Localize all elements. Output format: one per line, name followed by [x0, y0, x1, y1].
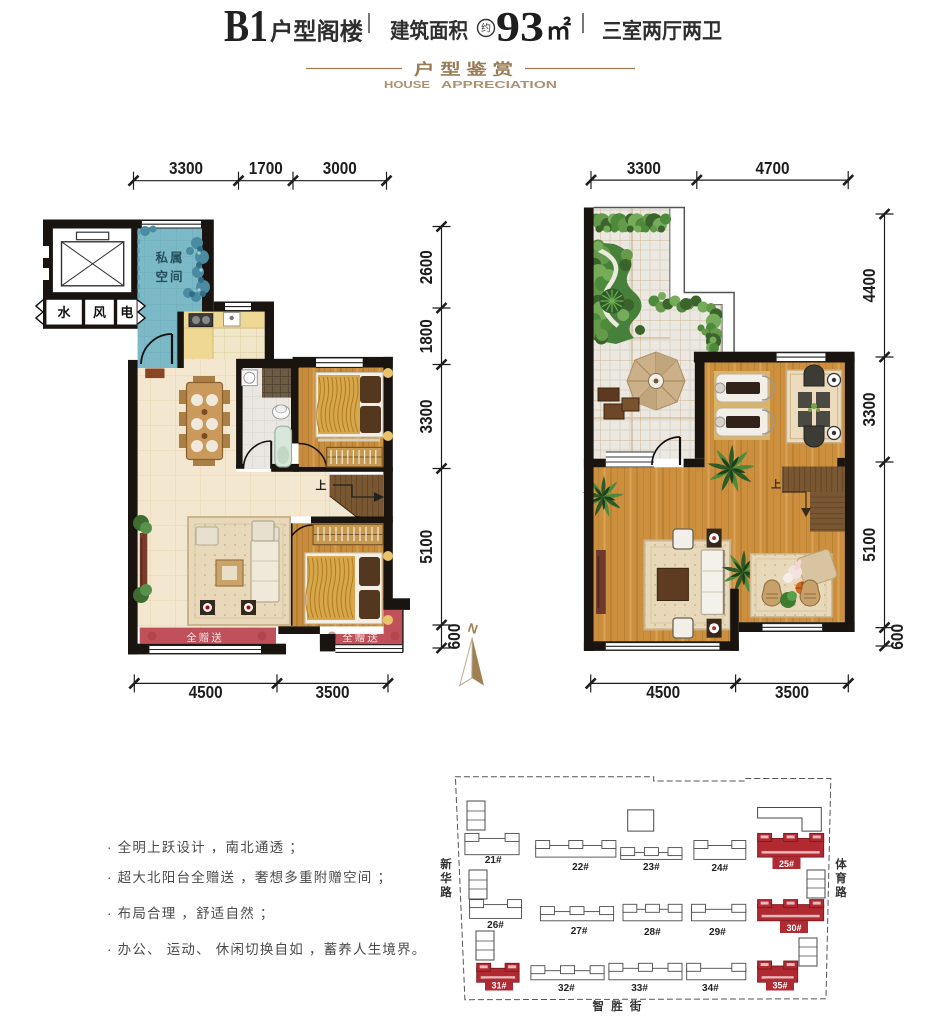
svg-text:· 超大北阳台全赠送 ，奢想多重附赠空间 ；: · 超大北阳台全赠送 ，奢想多重附赠空间 ；: [107, 869, 392, 886]
svg-text:1700: 1700: [249, 158, 283, 178]
svg-text:华: 华: [440, 871, 452, 885]
svg-text:4500: 4500: [646, 682, 680, 702]
svg-text:24#: 24#: [711, 863, 728, 874]
svg-text:26#: 26#: [487, 920, 504, 931]
svg-text:21#: 21#: [485, 855, 502, 866]
svg-text:空间: 空间: [155, 269, 184, 284]
svg-text:5100: 5100: [416, 529, 436, 563]
svg-text:4500: 4500: [189, 682, 223, 702]
svg-text:2600: 2600: [416, 250, 436, 284]
svg-text:1800: 1800: [416, 319, 436, 353]
svg-text:29#: 29#: [709, 927, 726, 938]
svg-text:31#: 31#: [491, 981, 506, 991]
svg-text:3500: 3500: [775, 682, 809, 702]
svg-text:3300: 3300: [169, 158, 203, 178]
svg-text:33#: 33#: [631, 983, 648, 994]
svg-text:25#: 25#: [779, 859, 794, 869]
svg-text:户 型 鉴 赏: 户 型 鉴 赏: [414, 60, 514, 79]
svg-text:34#: 34#: [702, 983, 719, 994]
svg-text:上: 上: [316, 478, 327, 492]
svg-text:600: 600: [887, 624, 907, 650]
svg-text:路: 路: [835, 885, 847, 899]
svg-text:建筑面积: 建筑面积: [390, 19, 468, 43]
svg-text:3300: 3300: [416, 399, 436, 433]
svg-text:600: 600: [444, 623, 464, 649]
svg-text:约: 约: [481, 22, 491, 35]
svg-text:智 胜 街: 智 胜 街: [593, 999, 644, 1013]
svg-text:32#: 32#: [558, 983, 575, 994]
svg-text:3500: 3500: [316, 682, 350, 702]
svg-text:水: 水: [57, 305, 71, 320]
svg-text:3300: 3300: [859, 392, 879, 426]
svg-text:B1: B1: [224, 0, 268, 51]
svg-text:户型阁楼: 户型阁楼: [270, 18, 363, 45]
svg-text:体: 体: [835, 857, 847, 871]
svg-text:5100: 5100: [859, 528, 879, 562]
svg-text:育: 育: [835, 871, 847, 885]
svg-text:22#: 22#: [572, 862, 589, 873]
svg-text:上: 上: [771, 478, 781, 491]
svg-text:28#: 28#: [644, 927, 661, 938]
svg-text:· 布局合理 ，舒适自然 ；: · 布局合理 ，舒适自然 ；: [107, 905, 275, 922]
svg-text:APPRECIATION: APPRECIATION: [441, 80, 557, 91]
svg-text:路: 路: [440, 885, 452, 899]
svg-text:全赠送: 全赠送: [186, 631, 224, 644]
svg-text:3300: 3300: [627, 158, 661, 178]
svg-text:30#: 30#: [786, 923, 801, 933]
svg-text:4400: 4400: [859, 268, 879, 302]
svg-text:电: 电: [120, 305, 133, 320]
svg-text:全赠送: 全赠送: [342, 631, 380, 644]
svg-text:· 全明上跃设计 ，南北通透 ；: · 全明上跃设计 ，南北通透 ；: [107, 839, 304, 856]
svg-text:27#: 27#: [571, 926, 588, 937]
svg-text:㎡: ㎡: [546, 16, 571, 45]
svg-text:35#: 35#: [772, 981, 787, 991]
svg-text:93: 93: [496, 5, 544, 51]
svg-text:4700: 4700: [756, 158, 790, 178]
svg-text:· 办公、 运动、 休闲切换自如 ，蓄养人生境界。: · 办公、 运动、 休闲切换自如 ，蓄养人生境界。: [107, 942, 427, 957]
svg-text:HOUSE: HOUSE: [384, 80, 430, 91]
svg-text:风: 风: [93, 305, 106, 320]
svg-text:新: 新: [440, 857, 452, 871]
svg-text:3000: 3000: [323, 158, 357, 178]
svg-text:私属: 私属: [154, 250, 184, 265]
svg-text:23#: 23#: [643, 862, 660, 873]
svg-text:三室两厅两卫: 三室两厅两卫: [602, 19, 722, 43]
